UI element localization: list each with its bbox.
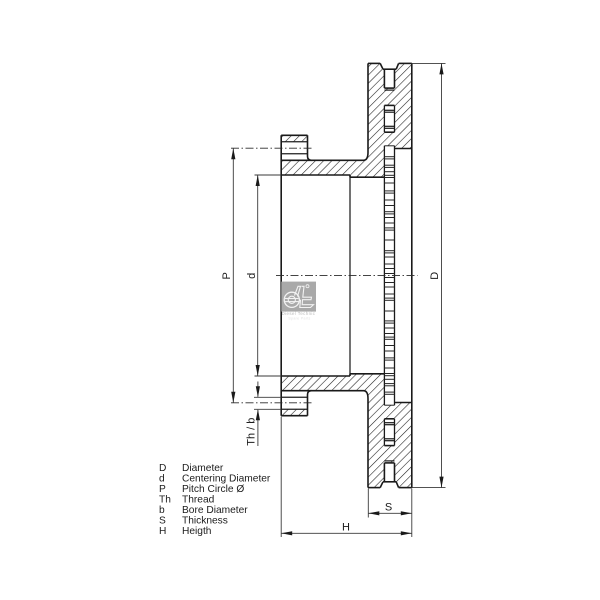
svg-text:Th: Th xyxy=(159,495,171,506)
svg-text:Diameter: Diameter xyxy=(182,463,224,474)
svg-text:P: P xyxy=(221,272,233,279)
svg-text:P: P xyxy=(159,484,166,495)
svg-text:Heigth: Heigth xyxy=(182,526,211,537)
svg-text:Pitch Circle Ø: Pitch Circle Ø xyxy=(182,484,244,495)
svg-text:d: d xyxy=(246,273,258,279)
svg-text:b: b xyxy=(159,505,165,516)
svg-text:Bore Diameter: Bore Diameter xyxy=(182,505,248,516)
svg-text:Th / b: Th / b xyxy=(245,418,257,446)
svg-text:Diesel Technic: Diesel Technic xyxy=(282,311,316,316)
svg-text:Thickness: Thickness xyxy=(182,516,228,527)
svg-text:S: S xyxy=(385,502,392,514)
svg-text:H: H xyxy=(159,526,166,537)
svg-text:Centering Diameter: Centering Diameter xyxy=(182,474,271,485)
svg-text:Spare Parts: Spare Parts xyxy=(288,317,310,321)
svg-text:H: H xyxy=(342,522,350,534)
svg-text:D: D xyxy=(429,272,441,280)
svg-text:Thread: Thread xyxy=(182,495,215,506)
svg-text:D: D xyxy=(159,463,166,474)
svg-text:S: S xyxy=(159,516,166,527)
svg-text:d: d xyxy=(159,474,165,485)
